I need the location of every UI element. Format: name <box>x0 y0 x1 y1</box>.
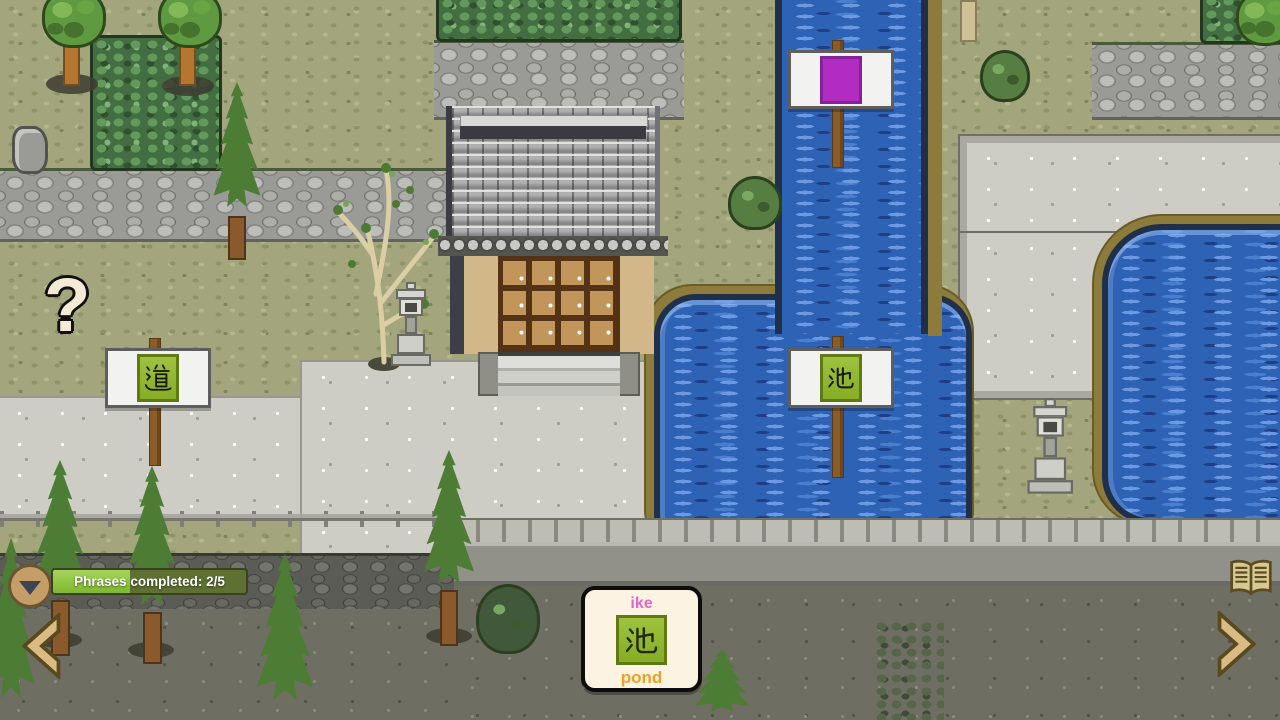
step-flank-right <box>618 352 640 396</box>
kanji-tile: 道 <box>137 354 179 402</box>
prev-area-button[interactable] <box>16 612 64 680</box>
tree-canopy <box>158 0 222 48</box>
kanji-tile: 池 <box>820 354 862 402</box>
kanji-ike-glyph <box>623 620 660 661</box>
pond-sign[interactable]: 池 <box>788 348 894 408</box>
phrasebook-button[interactable] <box>1228 558 1274 598</box>
word-kanji-tile: 池 <box>616 615 667 665</box>
rock <box>12 126 48 174</box>
bush-river <box>728 176 782 230</box>
shrub <box>874 620 944 720</box>
wooden-pole <box>960 0 977 42</box>
pine-trunk <box>228 216 246 260</box>
curb <box>454 542 1280 586</box>
pine-trunk <box>143 612 162 664</box>
word-reading: ike <box>630 595 652 613</box>
chevron-right-icon <box>1220 614 1254 675</box>
open-book-icon <box>1232 561 1271 593</box>
game-viewport: 道 池 ? Phrases completed: 2/5 ike 池 pond <box>0 0 1280 720</box>
locked-sign[interactable] <box>788 50 894 109</box>
road-sign[interactable]: 道 <box>105 348 211 408</box>
word-card[interactable]: ike 池 pond <box>581 586 702 692</box>
river-bank-strip <box>928 0 942 336</box>
hedge-top-left <box>90 35 222 171</box>
locked-kanji-placeholder <box>820 56 862 104</box>
progress-label: Phrases completed: 2/5 <box>74 574 225 589</box>
roof-eave <box>438 236 668 256</box>
next-area-button[interactable] <box>1214 610 1262 678</box>
entrance-steps <box>498 352 620 396</box>
collapse-progress-button[interactable] <box>8 564 52 608</box>
lattice-door[interactable] <box>498 256 620 352</box>
gravel-road-right <box>454 586 1280 720</box>
stone-lantern <box>388 282 434 378</box>
bush-top-right <box>980 50 1030 102</box>
step-flank-left <box>478 352 500 396</box>
stone-wall-top-right <box>1092 42 1280 120</box>
word-meaning: pond <box>621 668 663 688</box>
kanji-michi-glyph <box>143 360 173 396</box>
pine-trunk <box>440 590 458 646</box>
chevron-down-icon <box>19 581 41 595</box>
stone-lantern <box>1024 398 1076 507</box>
question-mark[interactable]: ? <box>44 268 90 344</box>
chevron-left-icon <box>24 616 58 677</box>
kanji-ike-glyph <box>826 360 856 396</box>
pond-right <box>1102 224 1280 524</box>
progress-bar: Phrases completed: 2/5 <box>51 568 248 595</box>
tree-canopy <box>42 0 106 48</box>
bush-bottom <box>476 584 540 654</box>
hedge-top-center <box>436 0 682 42</box>
roof-ridge-band <box>460 126 646 139</box>
